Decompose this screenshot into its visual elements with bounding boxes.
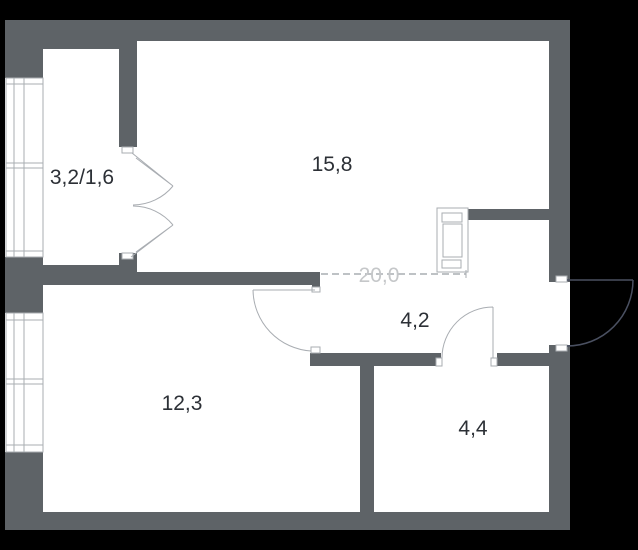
- shaft-inner-top: [442, 213, 462, 222]
- wall-under-balcony: [43, 265, 137, 285]
- wall-right-upper: [549, 20, 570, 282]
- wall-right-lower: [549, 345, 570, 530]
- door-balcony-frame-top: [122, 147, 133, 153]
- wall-hall-bottom-left: [310, 353, 441, 366]
- shaft-symbol: [437, 208, 468, 272]
- wall-niche-stub: [468, 209, 549, 220]
- wall-bathroom-left: [360, 366, 374, 512]
- door-bedroom-frame-bottom: [311, 347, 320, 353]
- door-bathroom-frame-right: [491, 358, 497, 366]
- window-bedroom: [6, 313, 43, 452]
- door-bathroom-frame-left: [436, 358, 442, 366]
- room-label-living: 15,8: [312, 153, 353, 176]
- floor-plan: 3,2/1,6 15,8 20,0 4,2 12,3 4,4: [0, 0, 638, 550]
- shaft-inner-middle: [443, 224, 462, 257]
- door-balcony-frame-bottom: [122, 253, 133, 259]
- wall-left-middle-block: [5, 257, 43, 313]
- room-label-total: 20,0: [359, 264, 400, 287]
- room-label-balcony: 3,2/1,6: [50, 166, 114, 189]
- room-label-hall: 4,2: [400, 309, 429, 332]
- door-entrance-frame-top: [556, 276, 567, 282]
- window-balcony: [6, 78, 43, 257]
- room-label-bathroom: 4,4: [458, 417, 488, 440]
- shaft-inner-bottom: [442, 260, 461, 268]
- door-entrance-frame-bottom: [556, 345, 567, 351]
- floor-plan-page: 3,2/1,6 15,8 20,0 4,2 12,3 4,4: [0, 0, 638, 550]
- wall-balcony-right-upper: [119, 41, 137, 147]
- room-label-bedroom: 12,3: [162, 392, 203, 415]
- wall-left-lower-block: [5, 452, 43, 512]
- wall-left-upper-block: [5, 20, 43, 78]
- wall-bottom: [5, 512, 570, 530]
- wall-hall-bottom-right: [497, 353, 549, 366]
- wall-living-bedroom-divider: [137, 272, 320, 285]
